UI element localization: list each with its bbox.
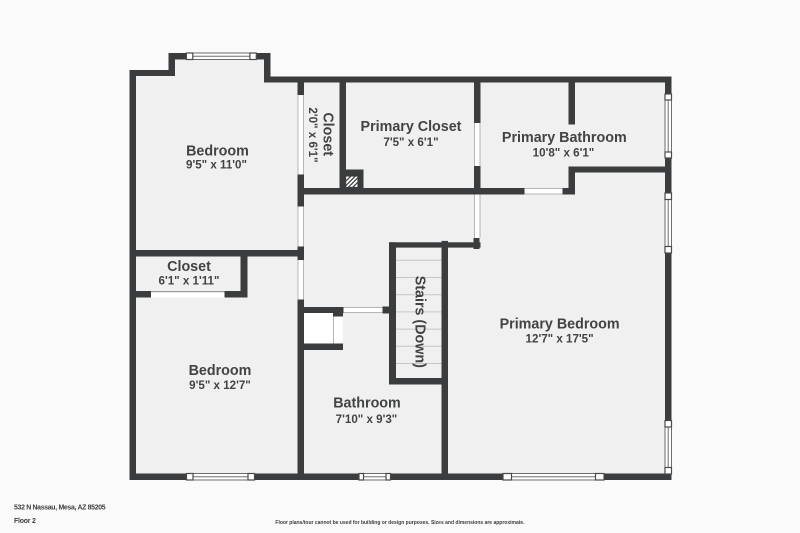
svg-text:2'0" x 6'1": 2'0" x 6'1" bbox=[306, 107, 319, 162]
svg-text:10'8" x 6'1": 10'8" x 6'1" bbox=[533, 146, 595, 159]
svg-text:Primary Bathroom: Primary Bathroom bbox=[502, 130, 627, 146]
svg-text:9'5" x 12'7": 9'5" x 12'7" bbox=[189, 379, 251, 392]
svg-text:6'1" x 1'11": 6'1" x 1'11" bbox=[159, 275, 220, 288]
svg-text:Floor plans/tour cannot be use: Floor plans/tour cannot be used for buil… bbox=[275, 520, 525, 526]
svg-text:Bathroom: Bathroom bbox=[333, 396, 401, 412]
svg-text:Bedroom: Bedroom bbox=[189, 363, 252, 379]
svg-text:Closet: Closet bbox=[320, 112, 336, 156]
svg-text:9'5" x 11'0": 9'5" x 11'0" bbox=[186, 159, 247, 172]
svg-text:7'5" x 6'1": 7'5" x 6'1" bbox=[383, 136, 438, 149]
svg-text:Stairs (Down): Stairs (Down) bbox=[411, 276, 427, 368]
svg-text:Floor 2: Floor 2 bbox=[14, 518, 36, 525]
svg-text:7'10" x 9'3": 7'10" x 9'3" bbox=[336, 413, 398, 426]
svg-text:532 N Nassau, Mesa, AZ 85205: 532 N Nassau, Mesa, AZ 85205 bbox=[14, 504, 106, 511]
svg-text:Primary Bedroom: Primary Bedroom bbox=[500, 317, 620, 333]
svg-text:Primary Closet: Primary Closet bbox=[361, 119, 462, 135]
svg-text:Closet: Closet bbox=[167, 259, 211, 275]
svg-text:12'7" x 17'5": 12'7" x 17'5" bbox=[526, 333, 594, 346]
svg-text:Bedroom: Bedroom bbox=[186, 144, 249, 160]
